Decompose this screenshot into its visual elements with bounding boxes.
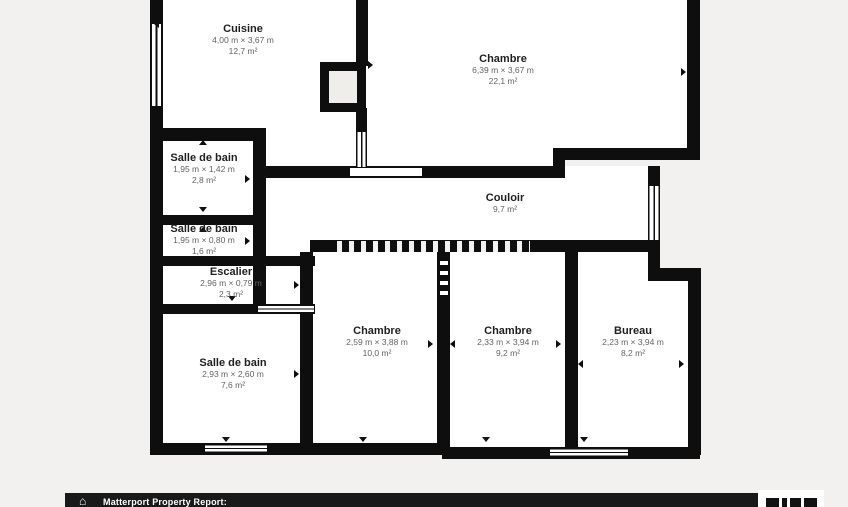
room-label-chambre-bottom-right: Chambre 2,33 m × 3,94 m 9,2 m²: [477, 325, 539, 358]
room-name: Chambre: [346, 325, 408, 337]
qr-code-module: [804, 498, 817, 507]
room-area: 1,6 m²: [170, 246, 237, 257]
room-area: 2,3 m²: [200, 289, 262, 300]
wall-segment: [356, 0, 368, 66]
room-area: 7,6 m²: [199, 380, 266, 391]
door-marker-icon: [580, 437, 588, 442]
room-dimensions: 1,95 m × 0,80 m: [170, 235, 237, 246]
door-marker-icon: [154, 237, 159, 245]
home-icon: ⌂: [79, 494, 86, 507]
room-dimensions: 6,39 m × 3,67 m: [472, 65, 534, 76]
room-area: 10,0 m²: [346, 348, 408, 359]
door-marker-icon: [428, 340, 433, 348]
door-marker-icon: [368, 61, 373, 69]
door-marker-icon: [222, 437, 230, 442]
room-area: 9,2 m²: [477, 348, 539, 359]
room-dimensions: 2,96 m × 0,79 m: [200, 278, 262, 289]
door-marker-icon: [154, 175, 159, 183]
door-marker-icon: [245, 175, 250, 183]
room-dimensions: 2,59 m × 3,88 m: [346, 337, 408, 348]
door-marker-icon: [199, 140, 207, 145]
room-label-chambre-bottom-left: Chambre 2,59 m × 3,88 m 10,0 m²: [346, 325, 408, 358]
room-name: Chambre: [472, 53, 534, 65]
room-label-salle-de-bain-3: Salle de bain 2,93 m × 2,60 m 7,6 m²: [199, 357, 266, 390]
door-marker-icon: [154, 281, 159, 289]
watermark-fragment: [440, 255, 448, 295]
room-area: 8,2 m²: [602, 348, 664, 359]
room-label-escalier: Escalier 2,96 m × 0,79 m 2,3 m²: [200, 266, 262, 299]
window: [258, 305, 314, 313]
duct-shaft-interior: [329, 71, 357, 103]
door-opening: [350, 167, 422, 177]
room-label-chambre-top: Chambre 6,39 m × 3,67 m 22,1 m²: [472, 53, 534, 86]
room-dimensions: 4,00 m × 3,67 m: [212, 35, 274, 46]
room-name: Chambre: [477, 325, 539, 337]
window: [205, 444, 267, 453]
room-name: Couloir: [486, 192, 525, 204]
room-area: 9,7 m²: [486, 204, 525, 215]
window: [150, 24, 163, 106]
room-area: 22,1 m²: [472, 76, 534, 87]
door-marker-icon: [482, 437, 490, 442]
wall-segment: [565, 252, 578, 455]
window: [550, 448, 628, 457]
report-footer-label: Matterport Property Report:: [103, 497, 227, 507]
room-name: Salle de bain: [199, 357, 266, 369]
room-name: Salle de bain: [170, 152, 237, 164]
door-marker-icon: [681, 68, 686, 76]
door-marker-icon: [556, 340, 561, 348]
qr-code-module: [782, 498, 787, 507]
wall-segment: [553, 148, 700, 160]
window: [648, 186, 660, 240]
wall-segment: [300, 252, 313, 455]
door-marker-icon: [294, 370, 299, 378]
wall-segment: [150, 443, 442, 455]
room-dimensions: 1,95 m × 1,42 m: [170, 164, 237, 175]
room-fill-chambre-top: [553, 0, 687, 148]
door-marker-icon: [359, 437, 367, 442]
room-label-salle-de-bain-1: Salle de bain 1,95 m × 1,42 m 2,8 m²: [170, 152, 237, 185]
room-dimensions: 2,93 m × 2,60 m: [199, 369, 266, 380]
door-marker-icon: [578, 360, 583, 368]
door-marker-icon: [294, 281, 299, 289]
report-footer-bar: ⌂ Matterport Property Report:: [65, 493, 783, 507]
floor-plan: Cuisine 4,00 m × 3,67 m 12,7 m² Chambre …: [0, 0, 848, 507]
qr-code: [758, 490, 824, 507]
door-marker-icon: [154, 20, 159, 28]
window: [356, 132, 367, 168]
qr-code-module: [790, 498, 801, 507]
wall-segment: [687, 0, 700, 160]
door-marker-icon: [245, 237, 250, 245]
room-name: Bureau: [602, 325, 664, 337]
door-marker-icon: [458, 168, 466, 173]
room-area: 2,8 m²: [170, 175, 237, 186]
room-name: Cuisine: [212, 23, 274, 35]
door-marker-icon: [154, 370, 159, 378]
room-label-bureau: Bureau 2,23 m × 3,94 m 8,2 m²: [602, 325, 664, 358]
wall-segment: [150, 128, 266, 141]
door-marker-icon: [450, 340, 455, 348]
room-name: Escalier: [200, 266, 262, 278]
door-marker-icon: [199, 207, 207, 212]
room-dimensions: 2,23 m × 3,94 m: [602, 337, 664, 348]
room-name: Salle de bain: [170, 223, 237, 235]
wall-segment: [356, 108, 367, 132]
qr-code-module: [766, 498, 779, 507]
room-label-couloir: Couloir 9,7 m²: [486, 192, 525, 215]
door-marker-icon: [305, 340, 310, 348]
room-area: 12,7 m²: [212, 46, 274, 57]
wall-segment: [688, 268, 701, 455]
room-dimensions: 2,33 m × 3,94 m: [477, 337, 539, 348]
room-label-salle-de-bain-2: Salle de bain 1,95 m × 0,80 m 1,6 m²: [170, 223, 237, 256]
watermark-fragment: [330, 241, 530, 252]
door-marker-icon: [679, 360, 684, 368]
room-label-cuisine: Cuisine 4,00 m × 3,67 m 12,7 m²: [212, 23, 274, 56]
